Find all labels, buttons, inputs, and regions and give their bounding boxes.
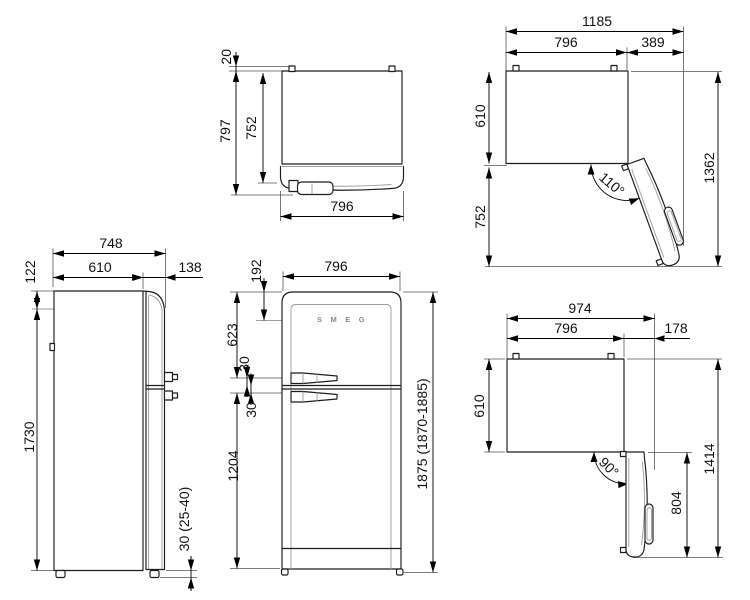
open-door-90	[621, 452, 654, 558]
door-open-90-view: 974 796 178 610 1414 804 90°	[471, 300, 723, 558]
dim-top-depth-overall: 797	[217, 119, 233, 143]
dim-front-logo-offset: 192	[248, 259, 264, 283]
dim-110-depth-overall: 1362	[701, 152, 717, 183]
dim-90-depth-overall: 1414	[701, 443, 717, 474]
front-view: 192 796 623 30 30 1204 1875 (1870-1885) …	[224, 258, 438, 575]
dim-side-door-depth: 138	[178, 259, 202, 275]
top-view: 20 797 752 796	[217, 49, 404, 221]
dim-110-door-swing: 752	[472, 205, 488, 229]
front-outline: SMEG	[282, 292, 404, 575]
dim-110-width-overall: 1185	[582, 13, 612, 29]
dim-side-feet: 30 (25-40)	[176, 487, 192, 552]
dim-front-upper-door: 623	[224, 323, 240, 347]
fridge-dimension-drawing: 20 797 752 796	[0, 0, 750, 600]
top-view-outline	[281, 66, 404, 195]
dim-front-lower-door: 1204	[225, 450, 241, 481]
side-view: 748 610 138 122 1730 30 (25-40)	[21, 235, 203, 591]
dim-top-clearance: 20	[218, 49, 234, 65]
dim-90-width-overall: 974	[568, 300, 592, 316]
dim-side-depth-overall: 748	[99, 235, 123, 251]
open-door-110	[622, 155, 690, 270]
open90-outline: 90°	[507, 354, 653, 558]
dim-90-door-length: 804	[668, 491, 684, 515]
dim-side-depth-case: 610	[88, 259, 112, 275]
dim-top-width: 796	[330, 198, 354, 214]
dim-110-depth-case: 610	[472, 104, 488, 128]
dim-110-angle: 110°	[596, 169, 628, 199]
dim-front-gap-lower: 30	[243, 402, 259, 418]
dim-90-angle: 90°	[596, 454, 622, 480]
dim-110-width-case: 796	[554, 34, 578, 50]
side-outline	[50, 291, 178, 578]
dim-top-depth-case: 752	[243, 116, 259, 140]
dim-front-height-overall: 1875 (1870-1885)	[414, 378, 430, 489]
dim-110-door-projection: 389	[641, 34, 665, 50]
dim-front-gap-upper: 30	[236, 356, 252, 372]
dim-side-top-section: 122	[22, 260, 38, 284]
dim-90-door-projection: 178	[664, 320, 688, 336]
open110-outline: 110°	[506, 66, 690, 270]
drawing-canvas: 20 797 752 796	[0, 0, 750, 600]
brand-logo: SMEG	[317, 315, 373, 324]
dim-90-depth-case: 610	[471, 394, 487, 418]
dim-90-width-case: 796	[554, 320, 578, 336]
dim-side-height-case: 1730	[21, 421, 37, 452]
door-open-110-view: 1185 796 389 610 752 1362 110°	[472, 13, 722, 270]
dim-front-width: 796	[324, 258, 348, 274]
